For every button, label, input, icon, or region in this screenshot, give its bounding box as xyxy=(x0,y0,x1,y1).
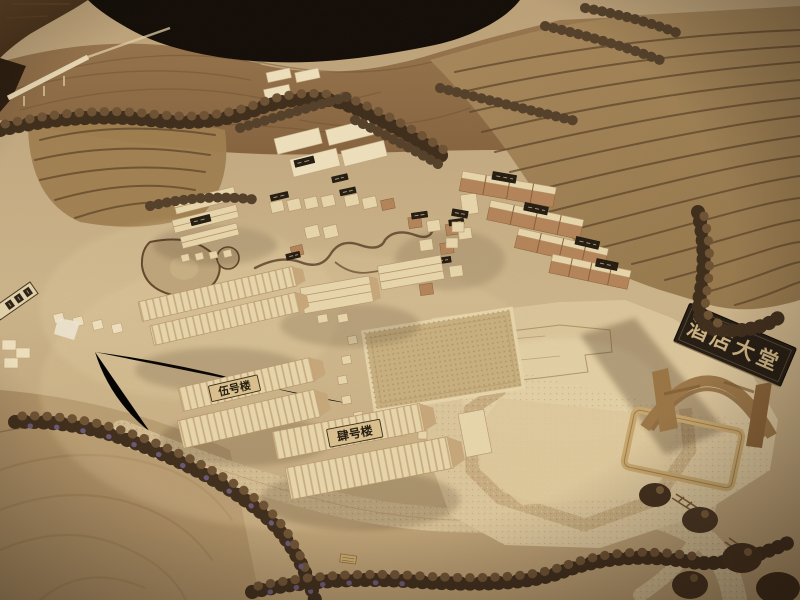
model-scene: 伍号楼 肆号楼 酒店大堂 xyxy=(0,0,800,600)
vignette xyxy=(0,0,800,600)
model-photo: 伍号楼 肆号楼 酒店大堂 xyxy=(0,0,800,600)
